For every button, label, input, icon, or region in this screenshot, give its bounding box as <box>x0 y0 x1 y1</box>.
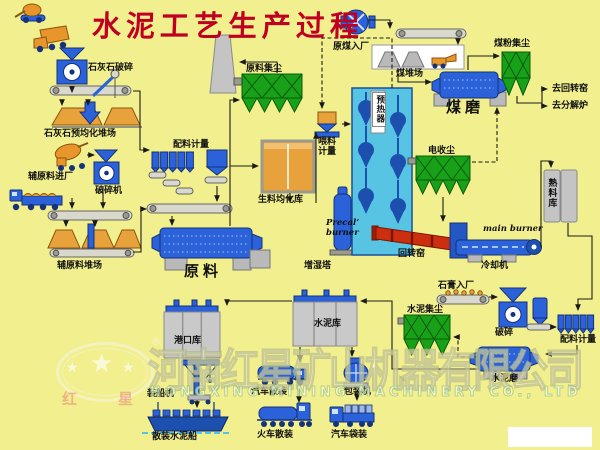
label-aux-material-entry: 辅原料进厂 <box>28 172 73 182</box>
electrostatic-precipitator-icon <box>408 156 470 194</box>
wheel-loader-icon <box>15 4 45 23</box>
label-to-rotary-kiln: 去回转窑 <box>552 84 588 94</box>
label-bulk-cement-ship: 散装水泥船 <box>152 432 197 442</box>
label-aux-material-yard: 辅原料堆场 <box>57 261 102 271</box>
label-limestone-crushing: 石灰石破碎 <box>88 63 133 73</box>
cooler-icon <box>456 240 542 263</box>
label-gypsum-crushing: 破碎 <box>495 328 513 338</box>
bulk-tanker-truck-icon <box>258 366 306 385</box>
conveyor-icon <box>50 249 134 257</box>
feed-hopper-icon <box>205 150 227 183</box>
label-electrostatic-precipitator: 电收尘 <box>428 146 455 156</box>
port-silo-icon <box>164 300 220 358</box>
label-train-bulk-loading: 火车散装 <box>257 430 293 440</box>
cement-dust-collector-icon <box>398 315 450 355</box>
conveyor-icon <box>48 211 132 220</box>
gypsum-crusher-icon <box>499 288 527 327</box>
label-limestone-preblending-yard: 石灰石预均化堆场 <box>44 129 116 139</box>
feeding-metering-icon <box>315 112 339 137</box>
diagram-title: 水泥工艺生产过程 <box>91 3 364 45</box>
elevator-silo-icon <box>527 298 551 330</box>
aux-piles-icon <box>48 224 141 248</box>
packing-machine-icon <box>344 358 368 388</box>
conveyor-icon <box>396 29 466 38</box>
ship-loader-icon <box>183 360 219 405</box>
label-batching-metering: 配料计量 <box>173 140 209 150</box>
train-wagon-icon <box>257 403 312 427</box>
batching-silos-icon <box>152 152 193 172</box>
limestone-piles-icon <box>52 102 142 127</box>
label-raw-meal-silo: 生料均化库 <box>258 195 303 205</box>
coal-dust-collector-icon <box>502 52 530 95</box>
mixer-truck-icon <box>54 141 88 171</box>
conveyor-icon <box>147 204 232 213</box>
label-clinker-silo: 熟料库 <box>546 178 556 208</box>
label-cement-mill: 水泥磨 <box>491 374 518 384</box>
cascade-conveyors-icon <box>149 172 193 194</box>
label-batching-metering-2: 配料计量 <box>560 335 596 345</box>
aux-crusher-icon <box>94 150 119 184</box>
label-cement-silo: 水泥库 <box>314 319 341 329</box>
label-coal-mill: 煤磨 <box>446 99 484 116</box>
flatbed-truck-icon <box>10 190 62 210</box>
label-port-silo: 港口库 <box>174 336 201 346</box>
bag-truck-icon <box>330 405 374 427</box>
label-gypsum-entry: 石膏入厂 <box>438 281 474 291</box>
label-feeding-metering: 喂料 计量 <box>318 137 336 158</box>
label-humidifying-tower: 增湿塔 <box>304 261 331 271</box>
label-to-calciner: 去分解炉 <box>552 101 588 111</box>
bulk-ship-icon <box>142 402 232 433</box>
label-coal-dust-collector: 煤粉集尘 <box>494 39 530 49</box>
label-preheater: 预热器 <box>372 92 386 127</box>
label-packing-machine: 包装机 <box>344 387 371 397</box>
label-raw-dust-collector: 原料集尘 <box>246 64 282 74</box>
label-cement-dust-collector: 水泥集尘 <box>407 305 443 315</box>
gypsum-conveyor-icon <box>437 290 489 304</box>
cement-silo-icon <box>293 290 357 346</box>
label-ship-loader: 装船机 <box>147 389 174 399</box>
label-raw-mill: 原料 <box>184 263 222 280</box>
raw-meal-silo-icon <box>262 141 314 192</box>
label-truck-bag-loading: 汽车袋装 <box>331 430 367 440</box>
label-coal-yard: 煤堆场 <box>396 69 423 79</box>
coal-yard-icon <box>372 45 464 69</box>
label-precal-burner: Precal’ burner <box>326 219 359 239</box>
label-main-burner: main burner <box>483 225 543 235</box>
label-crusher: 破碎机 <box>95 186 122 196</box>
conveyor-icon <box>50 86 131 95</box>
label-raw-coal-entry: 原煤入厂 <box>333 42 369 52</box>
white-patch <box>508 427 592 447</box>
process-diagram: 水泥工艺生产过程 石灰石破碎 石灰石预均化堆场 辅原料进厂 破碎机 辅原料堆场 … <box>0 0 600 450</box>
cement-batching-silos-icon <box>558 315 594 333</box>
limestone-crusher-icon <box>57 48 87 84</box>
label-cooler: 冷却机 <box>481 261 508 271</box>
label-rotary-kiln: 回转窑 <box>398 249 425 259</box>
raw-dust-collector-icon <box>234 74 302 112</box>
label-truck-bulk-loading: 汽车散装 <box>251 387 287 397</box>
